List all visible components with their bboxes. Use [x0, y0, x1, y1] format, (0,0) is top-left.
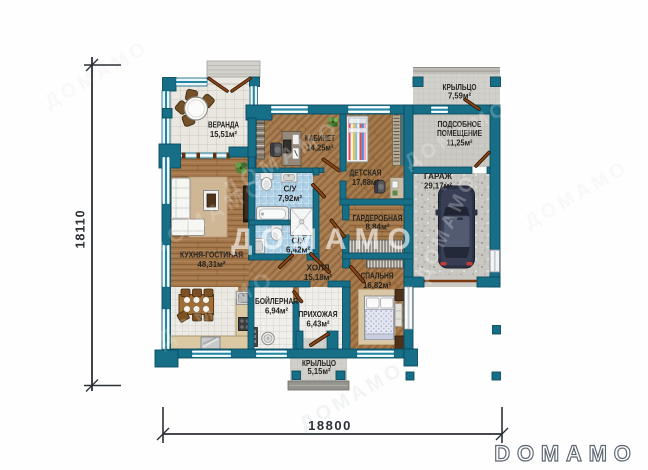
svg-text:6,43м²: 6,43м² — [307, 319, 330, 329]
svg-text:15,51м²: 15,51м² — [210, 129, 237, 139]
svg-text:7,92м²: 7,92м² — [278, 193, 302, 203]
svg-text:6,94м²: 6,94м² — [265, 306, 288, 316]
svg-text:16,82м²: 16,82м² — [363, 280, 391, 290]
svg-text:DOMAMO: DOMAMO — [494, 441, 637, 466]
svg-text:ГАРАЖ: ГАРАЖ — [424, 171, 452, 181]
svg-text:15,18м²: 15,18м² — [304, 272, 332, 282]
svg-text:СПАЛЬНЯ: СПАЛЬНЯ — [361, 271, 394, 281]
svg-text:48,31м²: 48,31м² — [198, 259, 226, 269]
svg-text:ВЕРАНДА: ВЕРАНДА — [208, 120, 239, 130]
svg-text:5,15м²: 5,15м² — [308, 366, 331, 376]
svg-text:ДОМАМО: ДОМАМО — [231, 223, 419, 256]
svg-text:ДЕТСКАЯ: ДЕТСКАЯ — [350, 168, 382, 178]
svg-text:18110: 18110 — [74, 209, 88, 248]
svg-text:29,17м²: 29,17м² — [424, 181, 452, 191]
svg-text:ПРИХОЖАЯ: ПРИХОЖАЯ — [299, 309, 338, 319]
svg-text:7,59м²: 7,59м² — [448, 91, 471, 101]
svg-text:17,88м²: 17,88м² — [352, 177, 379, 187]
svg-text:С/У: С/У — [284, 184, 298, 194]
svg-text:ХОЛЛ: ХОЛЛ — [307, 263, 330, 273]
